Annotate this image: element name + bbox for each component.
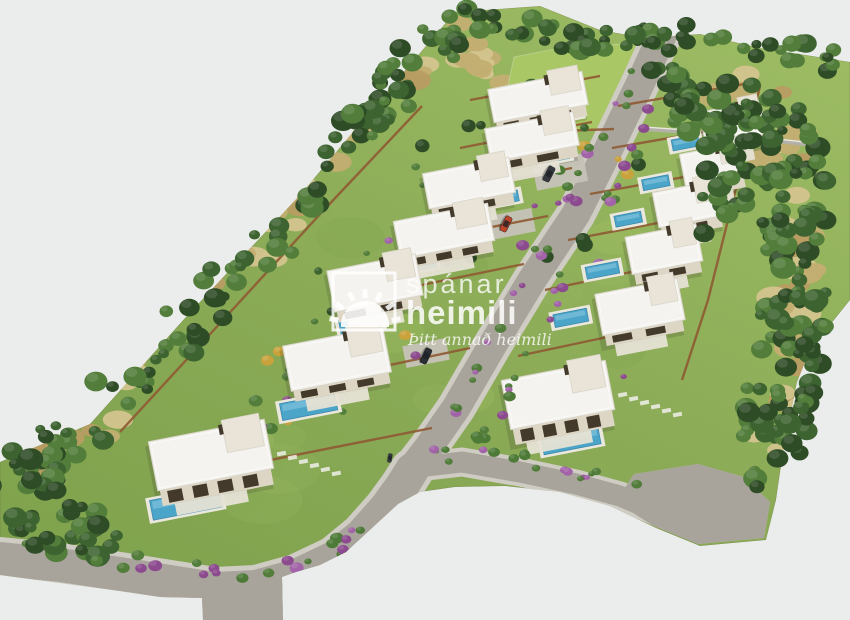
villa-window (520, 427, 535, 441)
roof-back-block (221, 413, 264, 453)
roof-back-block (476, 151, 509, 182)
roof-back-block (566, 354, 606, 393)
villa-window (542, 423, 557, 437)
roof-back-block (646, 272, 678, 306)
roof-back-block (382, 248, 416, 282)
villa-window (586, 415, 601, 429)
villa-window (564, 419, 579, 433)
roof-back-block (547, 65, 582, 95)
roof-back-block (345, 321, 383, 358)
roof-back-block (669, 217, 697, 248)
roof-back-block (540, 106, 573, 136)
site-plan-render: spánar heimili Þitt annað heimili (0, 0, 850, 620)
development-aerial-svg (0, 0, 850, 620)
roof-back-block (452, 197, 487, 229)
